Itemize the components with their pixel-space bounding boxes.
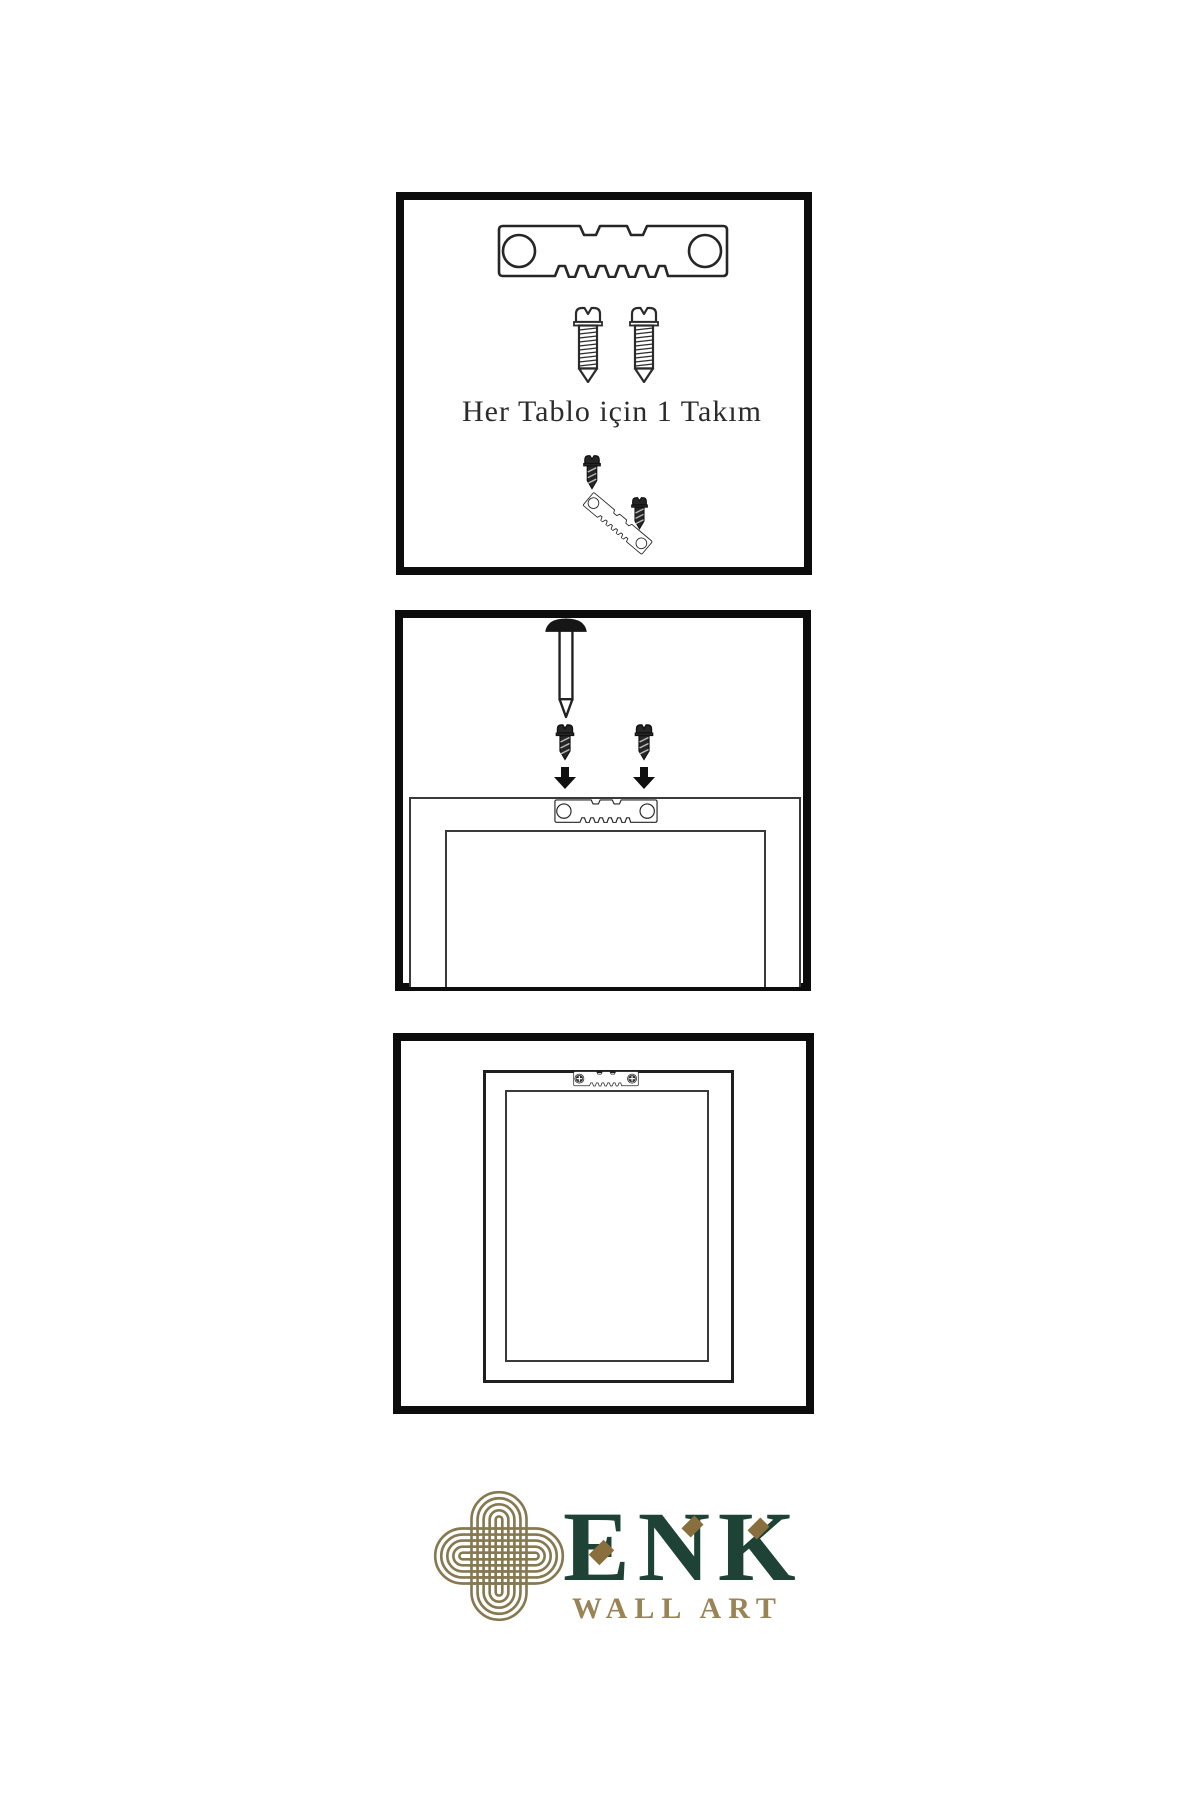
sawtooth-hanger-icon: [554, 799, 658, 823]
frame-back-inner: [445, 830, 766, 987]
screw-icon: [627, 305, 661, 383]
screw-icon: [571, 305, 605, 383]
screw-dark-icon: [554, 722, 576, 762]
installed-hanger-icon: [573, 1071, 639, 1088]
arrow-down-icon: [553, 767, 577, 789]
wall-nail-icon: [544, 618, 588, 719]
sawtooth-hanger-icon: [497, 224, 729, 278]
knot-icon: [433, 1490, 565, 1622]
arrow-down-icon: [632, 767, 656, 789]
screw-dark-icon: [581, 453, 603, 491]
instruction-sheet: Her Tablo için 1 Takım ENK WALL ART: [0, 0, 1200, 1800]
step1-caption: Her Tablo için 1 Takım: [404, 395, 820, 429]
screw-dark-icon: [633, 722, 655, 762]
brand-tagline: WALL ART: [572, 1594, 783, 1624]
screw-dark-icon: [629, 495, 650, 531]
hung-frame-inner: [505, 1090, 709, 1362]
